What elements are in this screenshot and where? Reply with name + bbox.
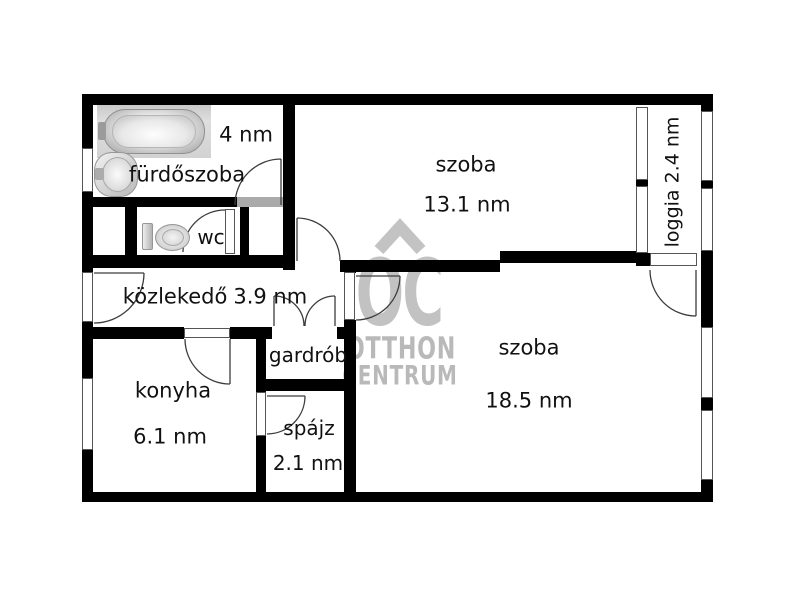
watermark-line2: CENTRUM xyxy=(342,361,457,392)
wall xyxy=(82,322,93,378)
pantry-door-opening xyxy=(256,392,266,436)
door-arc xyxy=(185,339,230,384)
room-label-kozlekedo: közlekedő3.9 nm xyxy=(123,285,307,308)
wall xyxy=(93,327,184,339)
wall xyxy=(82,492,713,502)
room-area-spajz: 2.1 nm xyxy=(273,452,343,474)
wall xyxy=(701,94,713,111)
wall xyxy=(93,197,237,207)
wall xyxy=(82,450,93,502)
window xyxy=(701,111,713,181)
room-area: 2.4 nm xyxy=(662,117,684,184)
wall xyxy=(636,253,650,266)
room-label-wc: wc xyxy=(197,226,224,248)
wall xyxy=(93,255,295,268)
wc-door-leaf xyxy=(225,209,235,254)
wall xyxy=(701,251,713,327)
room-label-konyha: konyha xyxy=(135,379,211,402)
wall xyxy=(340,260,500,272)
door-arc xyxy=(650,270,696,316)
window xyxy=(701,410,713,480)
toilet-icon xyxy=(142,223,153,250)
room-name: közlekedő xyxy=(123,284,228,308)
wall xyxy=(701,398,713,410)
bathtub-faucet-icon xyxy=(98,122,106,140)
loggia-window xyxy=(636,107,648,180)
wall xyxy=(82,94,93,148)
window xyxy=(701,188,713,251)
window xyxy=(701,327,713,398)
door-arc xyxy=(297,218,340,261)
window xyxy=(82,148,93,192)
loggia-door-opening xyxy=(650,253,697,266)
entrance-door-opening xyxy=(82,272,93,322)
toilet-icon xyxy=(162,229,184,246)
room-area-furdoszoba: 4 nm xyxy=(219,123,273,146)
room-label-gardrob: gardrób xyxy=(269,344,347,366)
room-area-szoba-felso: 13.1 nm xyxy=(423,193,510,216)
wall xyxy=(256,436,266,492)
window xyxy=(82,378,93,450)
wall xyxy=(283,105,295,270)
wall xyxy=(240,207,249,257)
wall xyxy=(230,327,272,339)
door-arc xyxy=(305,296,335,326)
loggia-window xyxy=(636,186,648,253)
room-label-furdoszoba: fürdőszoba xyxy=(129,163,245,186)
wall xyxy=(82,94,713,105)
room-area-szoba-also: 18.5 nm xyxy=(485,389,572,412)
sink-faucet-icon xyxy=(95,168,104,180)
room-label-loggia: loggia2.4 nm xyxy=(663,117,684,248)
room-label-szoba-felso: szoba xyxy=(435,153,496,176)
room-label-szoba-also: szoba xyxy=(498,336,559,359)
bathtub-icon xyxy=(112,115,196,148)
floorplan: OC OTTHON CENTRUM xyxy=(0,0,800,607)
wall xyxy=(82,192,93,272)
room-area-konyha: 6.1 nm xyxy=(133,425,207,448)
room-name: loggia xyxy=(662,189,684,247)
wall xyxy=(256,379,344,391)
room-area: 3.9 nm xyxy=(233,284,307,308)
wall xyxy=(500,251,636,263)
room-label-spajz: spájz xyxy=(283,417,334,439)
room-door-opening xyxy=(344,272,355,320)
wall xyxy=(701,181,713,188)
kitchen-door-opening xyxy=(184,328,230,338)
watermark-monogram: OC xyxy=(356,240,443,347)
wall xyxy=(701,480,713,502)
